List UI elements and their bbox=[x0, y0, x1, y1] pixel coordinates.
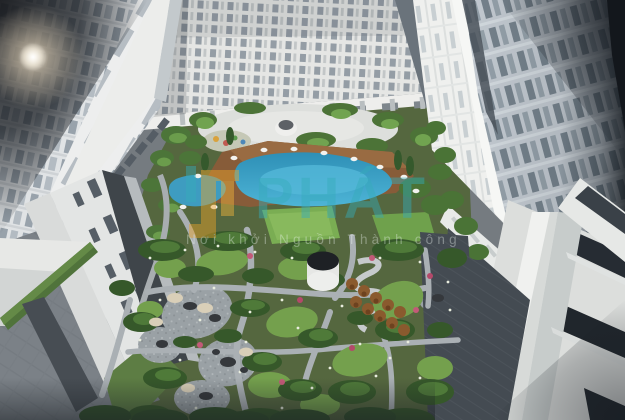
svg-text:PHÁT: PHÁT bbox=[255, 166, 429, 231]
svg-text:Nơi khởi Nguồn Thành công: Nơi khởi Nguồn Thành công bbox=[186, 232, 461, 247]
